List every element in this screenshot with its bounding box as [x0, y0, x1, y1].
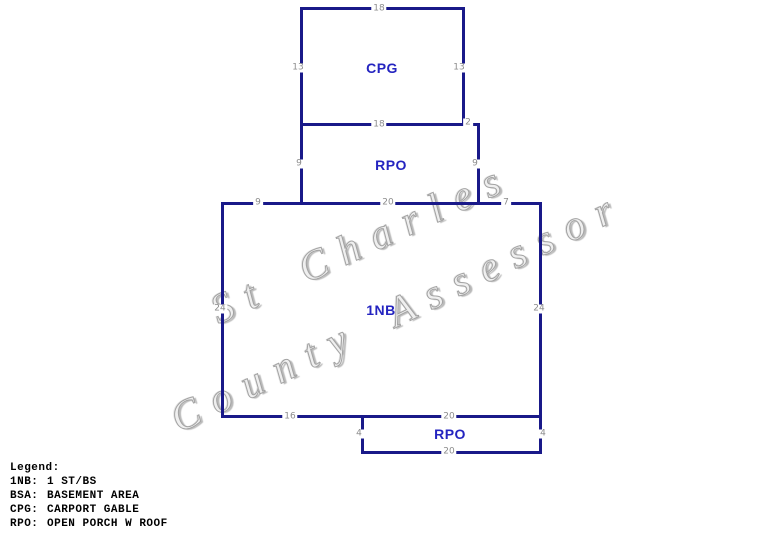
assessor-sketch-canvas: St Charles County Assessor 18 13 13 18 2… — [0, 0, 762, 545]
dim-cpg-offset: 2 — [463, 119, 473, 128]
area-label-rpo-lower: RPO — [434, 426, 466, 442]
area-label-main: 1NB — [366, 302, 396, 318]
area-label-rpo-upper: RPO — [375, 157, 407, 173]
area-label-cpg: CPG — [366, 60, 398, 76]
legend-desc: OPEN PORCH W ROOF — [47, 518, 168, 530]
dim-rpo-lower-left: 4 — [354, 430, 364, 439]
legend-desc: BASEMENT AREA — [47, 490, 139, 502]
legend-row: BSA:BASEMENT AREA — [10, 489, 168, 503]
legend-row: CPG:CARPORT GABLE — [10, 503, 168, 517]
legend-desc: CARPORT GABLE — [47, 504, 139, 516]
dim-cpg-bottom: 18 — [371, 121, 386, 130]
legend: Legend: 1NB:1 ST/BS BSA:BASEMENT AREA CP… — [10, 461, 168, 531]
dim-rpo-upper-right: 9 — [470, 160, 480, 169]
dim-main-top-mid: 20 — [380, 199, 395, 208]
legend-row: 1NB:1 ST/BS — [10, 475, 168, 489]
legend-code: CPG: — [10, 503, 47, 517]
legend-row: RPO:OPEN PORCH W ROOF — [10, 517, 168, 531]
dim-main-bottom-left: 16 — [282, 413, 297, 422]
dim-main-bottom-right: 20 — [441, 413, 456, 422]
legend-code: RPO: — [10, 517, 47, 531]
legend-code: BSA: — [10, 489, 47, 503]
dim-main-left: 24 — [212, 305, 227, 314]
dim-rpo-lower-right: 4 — [538, 430, 548, 439]
dim-cpg-top: 18 — [371, 5, 386, 14]
dim-rpo-upper-left: 9 — [294, 160, 304, 169]
dim-cpg-right: 13 — [451, 64, 466, 73]
legend-desc: 1 ST/BS — [47, 476, 97, 488]
legend-code: 1NB: — [10, 475, 47, 489]
dim-main-right: 24 — [531, 305, 546, 314]
dim-main-top-left: 9 — [253, 199, 263, 208]
dim-rpo-lower-bottom: 20 — [441, 448, 456, 457]
dim-main-top-right: 7 — [501, 199, 511, 208]
legend-title: Legend: — [10, 461, 168, 475]
dim-cpg-left: 13 — [290, 64, 305, 73]
